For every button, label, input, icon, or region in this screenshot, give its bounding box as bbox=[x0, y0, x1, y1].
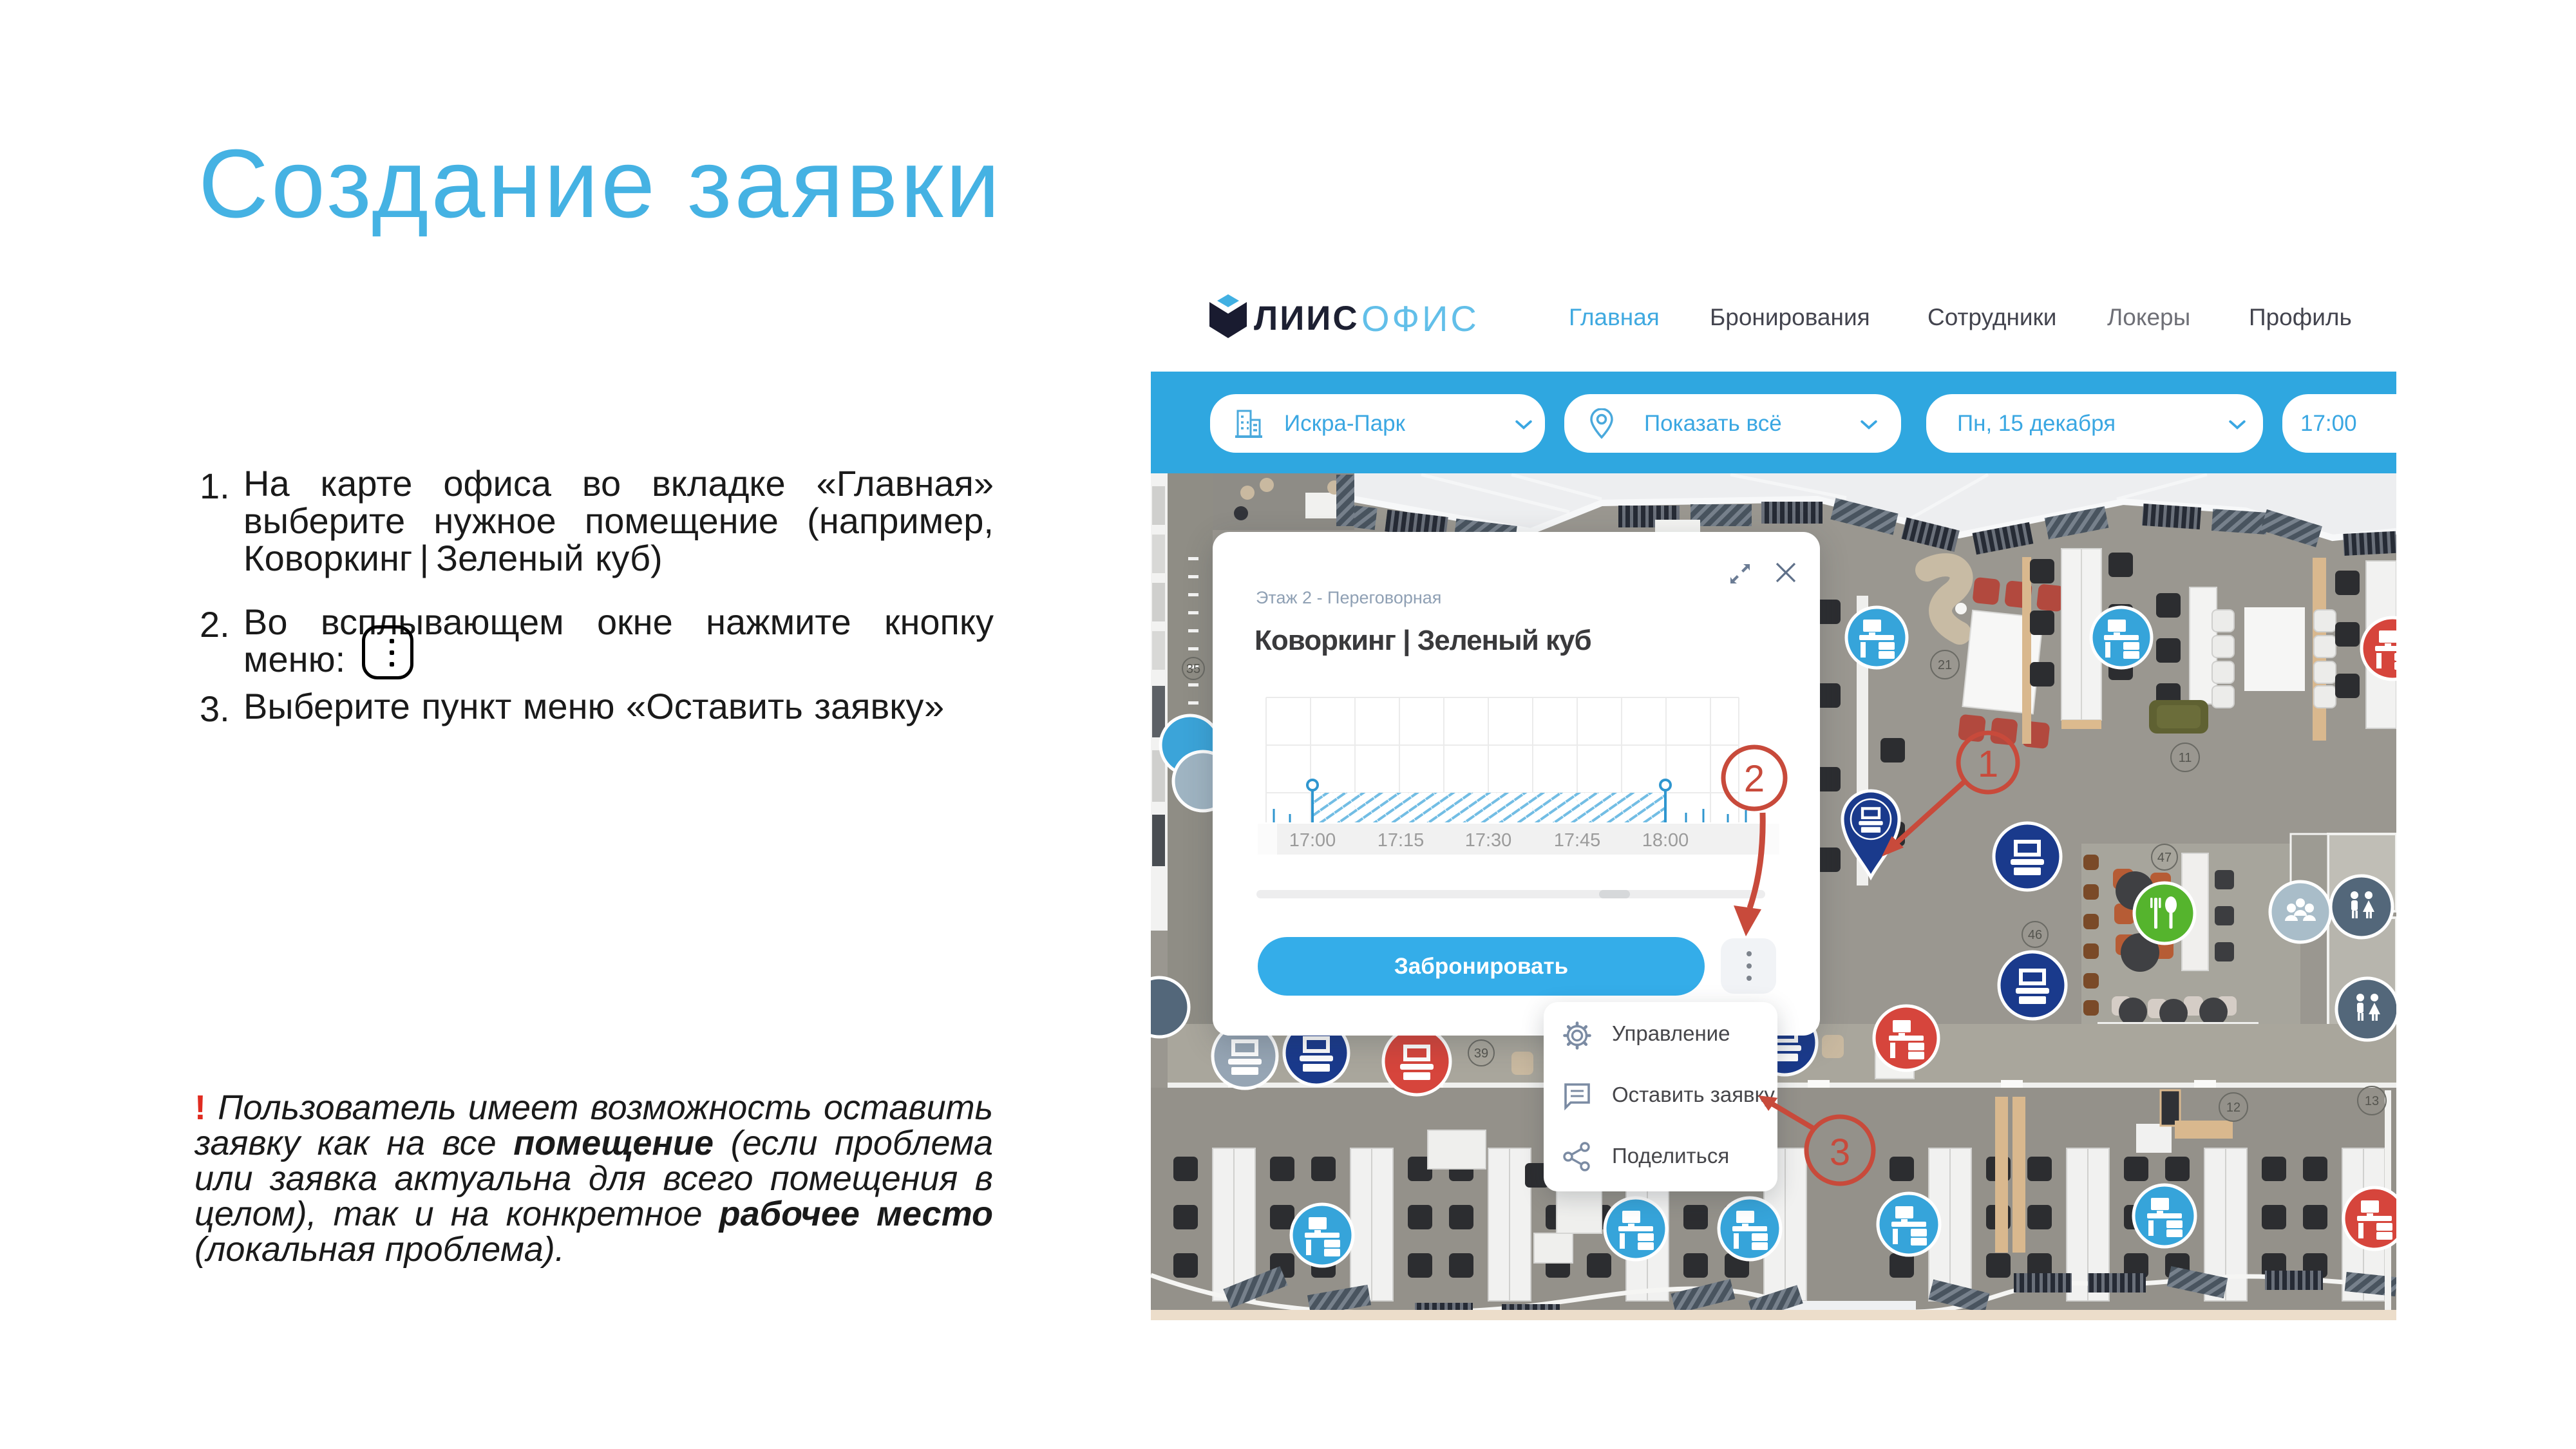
svg-text:3: 3 bbox=[1830, 1132, 1850, 1173]
svg-text:2: 2 bbox=[1744, 758, 1765, 800]
svg-text:1: 1 bbox=[1978, 743, 1998, 785]
